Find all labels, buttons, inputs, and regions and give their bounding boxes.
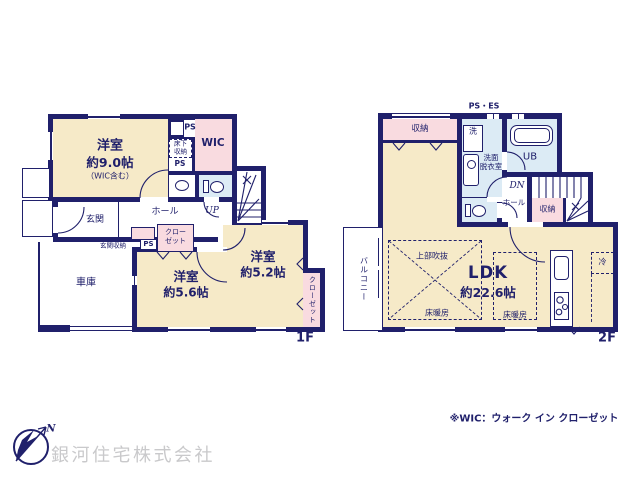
f1-stairs (237, 171, 261, 223)
f1-ps-mid-label: PS (175, 160, 186, 168)
f2-storage-right-label: 収納 (540, 206, 556, 215)
f2-toilet-bowl (472, 205, 486, 217)
f2-floor-heating-label-2: 床暖房 (503, 312, 527, 321)
f2-window-top-line (392, 116, 450, 117)
f2-ub-label: UB (523, 151, 537, 162)
f1-genkan-step-line (118, 202, 119, 237)
f2-bathtub-inner (514, 128, 550, 143)
f2-ldk-window-1-line (405, 329, 455, 330)
f2-stairs-fan (566, 198, 588, 222)
f1-room-main-size: 約9.0帖 (86, 156, 133, 170)
f1-wic-label: WIC (201, 138, 224, 150)
f1-room52-name: 洋室 (250, 250, 275, 264)
f1-outside-box (22, 168, 50, 198)
f2-ldk-size: 約22.6帖 (460, 286, 516, 300)
f2-washer-label: 洗 (469, 128, 477, 137)
f2-dn-label: DN (509, 181, 524, 191)
company-name: 銀河住宅株式会社 (51, 446, 215, 466)
f1-closet-vertical-label: クローゼット (308, 276, 316, 324)
north-compass-icon (14, 427, 48, 464)
f2-kitchen-stove (554, 292, 569, 320)
f1-floor-label: 1F (296, 332, 314, 347)
floor-plan-canvas: 洋室 約9.0帖 （WIC含む） PS 床下 収納 WIC PS UP 玄関 ホ… (0, 0, 640, 480)
f2-ldk-door-gap (508, 222, 543, 227)
f2-washroom-label-2: 脱衣室 (480, 163, 503, 171)
f1-genkan-storage-label: 玄関収納 (100, 242, 126, 249)
f1-room-main-door-gap (140, 197, 168, 202)
f1-room52-window-bottom-line (256, 329, 286, 330)
f1-toilet-bowl (210, 181, 224, 193)
f2-stairs-treads (532, 177, 588, 198)
f2-washstand-bowl (467, 160, 476, 169)
north-bird-icon (16, 430, 38, 460)
f1-up-label: UP (205, 206, 219, 216)
f1-porch (22, 200, 53, 237)
f1-room52-window-top-line (262, 222, 288, 223)
f1-garage-bottom-wall (38, 325, 70, 332)
f1-washbasin (175, 180, 189, 191)
f1-entry-door-gap (53, 207, 58, 233)
f1-window-left-line (50, 132, 51, 160)
f1-room56-size: 約5.6帖 (163, 286, 208, 299)
f2-balcony-label: バルコニー (359, 257, 368, 302)
f2-floor-label: 2F (598, 332, 616, 347)
f1-toilet-tank (203, 180, 209, 193)
f2-ldk-window-2-line (505, 329, 537, 330)
f1-hall-closet-label-2: ゼット (165, 238, 186, 246)
f1-garage-door-line-2 (70, 330, 132, 331)
f1-toilet-door-gap (204, 197, 219, 202)
f1-garage-door-line-1 (70, 326, 132, 327)
f1-genkan-label: 玄関 (86, 215, 104, 225)
f1-garage-label: 車庫 (76, 277, 96, 288)
f1-room-main-name: 洋室 (97, 140, 123, 155)
f2-toilet-tank (465, 204, 471, 217)
f2-balcony-window-1 (378, 238, 383, 266)
f1-ps-top-label: PS (184, 124, 196, 133)
f2-storage-top-label: 収納 (411, 125, 428, 135)
north-label: N (46, 423, 55, 434)
f2-ub-door-gap (502, 152, 507, 170)
f1-underfloor-label-2: 収納 (174, 148, 187, 155)
f1-ps-hall-label: PS (143, 241, 153, 249)
f1-garage-left-wall (38, 242, 40, 330)
f1-room52-size: 約5.2帖 (240, 266, 285, 279)
f2-ps-notch-line-2 (518, 114, 519, 119)
f2-floor-heating-label-1: 床暖房 (425, 310, 449, 319)
wic-note: ※WIC：ウォーク イン クローゼット (450, 413, 619, 424)
f2-ps-es-label: PS・ES (469, 103, 500, 112)
f1-ps-shaft-top (170, 121, 184, 136)
f1-room56-window-line (168, 329, 210, 330)
f2-fridge-label: 冷 (599, 259, 607, 268)
f1-room-main-note: （WIC含む） (86, 173, 134, 182)
f2-kitchen-sink (554, 256, 569, 280)
f1-room56-door-gap (197, 247, 227, 252)
f2-void-label: 上部吹抜 (416, 253, 448, 262)
f1-room56-name: 洋室 (173, 270, 198, 284)
f2-balcony-window-2 (378, 270, 383, 298)
f1-hall-label: ホール (151, 207, 178, 217)
f1-garage-window-line (134, 276, 135, 285)
f2-toilet-door-gap (497, 203, 502, 218)
f2-hall-label: ホール (503, 199, 526, 207)
f2-ldk-name: LDK (468, 264, 508, 282)
f1-window-top-line (88, 116, 120, 117)
f1-hall-closet-label-1: クロー (165, 229, 186, 237)
f2-washstand (463, 154, 479, 186)
f2-ps-notch-line-1 (493, 114, 494, 119)
